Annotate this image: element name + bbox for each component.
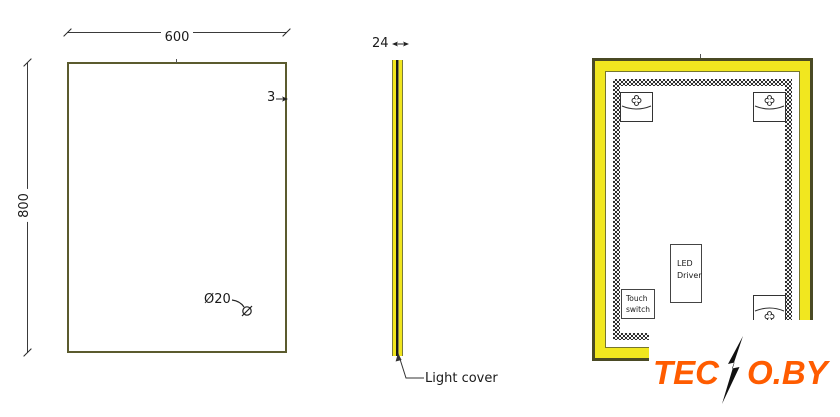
leader-arrow-icon bbox=[276, 94, 290, 104]
mounting-bracket-top-left bbox=[620, 92, 653, 122]
side-view-profile bbox=[392, 60, 403, 356]
sensor-hole-leader-icon bbox=[231, 297, 257, 321]
lightning-bolt-icon bbox=[716, 334, 750, 408]
depth-dimension-label: 24 bbox=[372, 36, 389, 51]
width-dimension-label: 600 bbox=[161, 30, 194, 45]
light-cover-leader-icon bbox=[393, 353, 425, 383]
height-dimension: 800 bbox=[13, 189, 32, 222]
depth-dimension-arrow-icon bbox=[392, 39, 410, 49]
logo-text-left: TEC bbox=[653, 354, 719, 392]
width-dimension: 600 bbox=[67, 26, 287, 45]
mounting-bracket-top-right bbox=[753, 92, 786, 122]
touch-switch-box: Touch switch bbox=[621, 289, 655, 319]
height-dimension-label: 800 bbox=[17, 189, 32, 222]
front-view-center-tick bbox=[176, 59, 177, 63]
mirror-technical-drawing: 600 800 3 Ø20 24 Light cover bbox=[0, 0, 840, 417]
light-cover-label: Light cover bbox=[425, 371, 498, 386]
logo-text-right: O.BY bbox=[747, 354, 828, 392]
sensor-hole-annotation: Ø20 bbox=[204, 292, 231, 307]
frame-thickness-annotation: 3 bbox=[267, 90, 275, 105]
back-view: LED Driver Touch switch bbox=[592, 58, 813, 361]
led-driver-box: LED Driver bbox=[670, 244, 702, 303]
watermark-logo: TEC O.BY bbox=[649, 320, 840, 417]
